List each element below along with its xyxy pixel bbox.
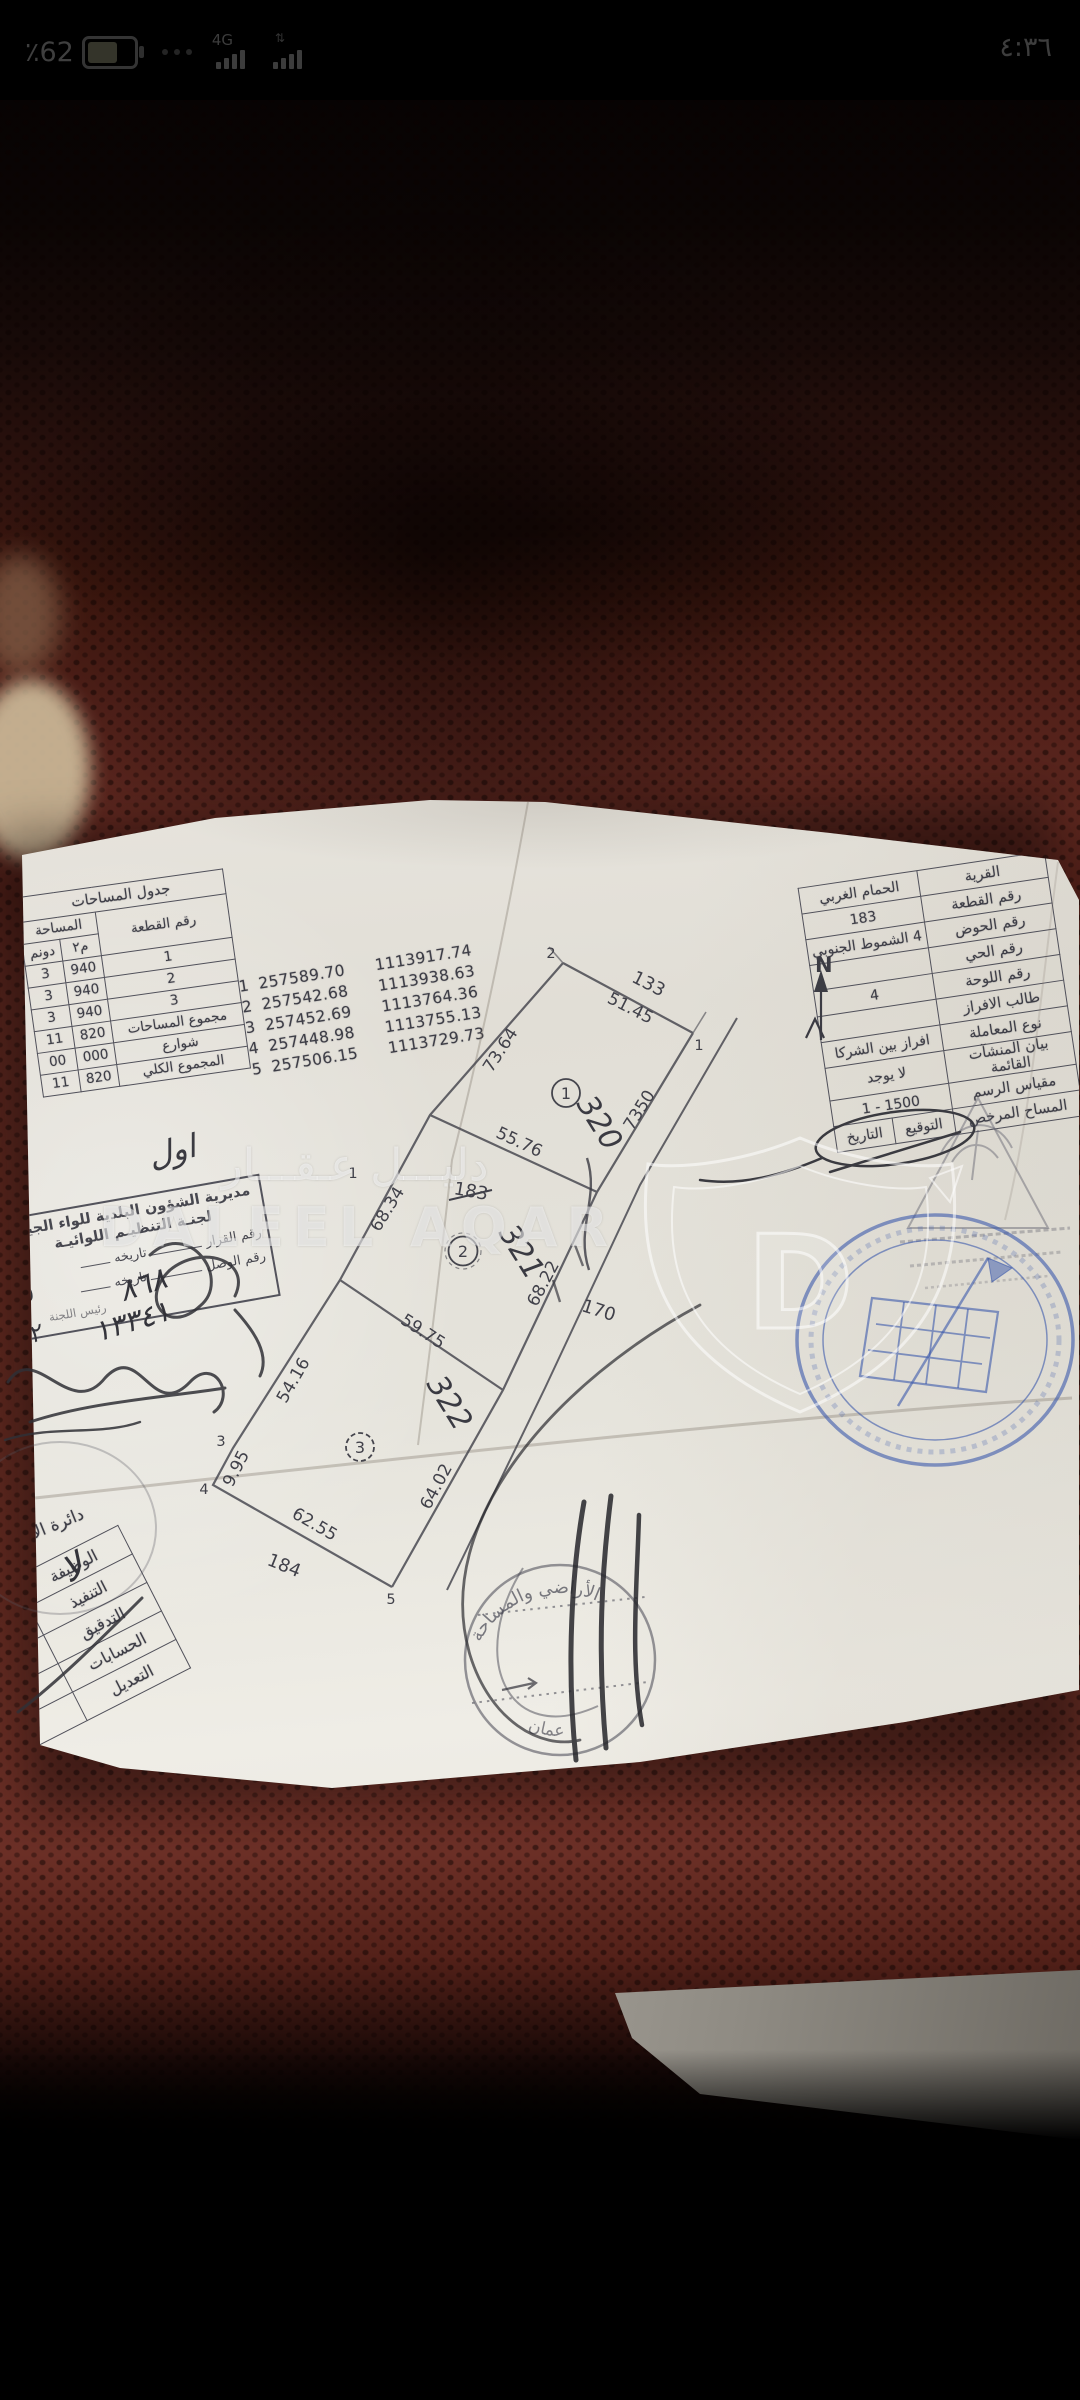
signal-bars-2-icon: ⇅ <box>273 35 302 69</box>
areas-table: جدول المساحات رقم القطعة المساحة م٢ دونم… <box>15 868 251 1097</box>
dept-header: دائرة الأ <box>28 1504 87 1543</box>
handwritten-awal: اول <box>144 1127 199 1175</box>
status-left-cluster: ٪62 4G ⇅ <box>25 30 302 74</box>
data-arrows-icon: ⇅ <box>275 31 285 45</box>
status-bar: ٪62 4G ⇅ ٤:٣٦ <box>0 0 1080 100</box>
table-cell: 11 <box>40 1070 81 1097</box>
wifi-off-icon <box>162 49 192 55</box>
photo-bottom-fade <box>0 2050 1080 2140</box>
photo-of-document[interactable]: جدول المساحات رقم القطعة المساحة م٢ دونم… <box>0 100 1080 2140</box>
parcel-info-table: القريةالحمام الغربيرقم القطعة183رقم الحو… <box>798 851 1080 1153</box>
clock: ٤:٣٦ <box>999 32 1052 63</box>
coordinates-list: 1257589.701113917.742257542.681113938.63… <box>237 940 486 1081</box>
battery-fill <box>88 42 117 63</box>
table-cell: 820 <box>78 1065 119 1092</box>
network-type-label: 4G <box>212 31 233 49</box>
committee-stamp-box: مديرية الشؤون البلدية للواء الجيزة لجنـة… <box>0 1174 281 1343</box>
battery-percent: ٪62 <box>25 37 74 68</box>
battery-icon <box>82 36 138 69</box>
signal-bars-icon: 4G <box>216 35 245 69</box>
